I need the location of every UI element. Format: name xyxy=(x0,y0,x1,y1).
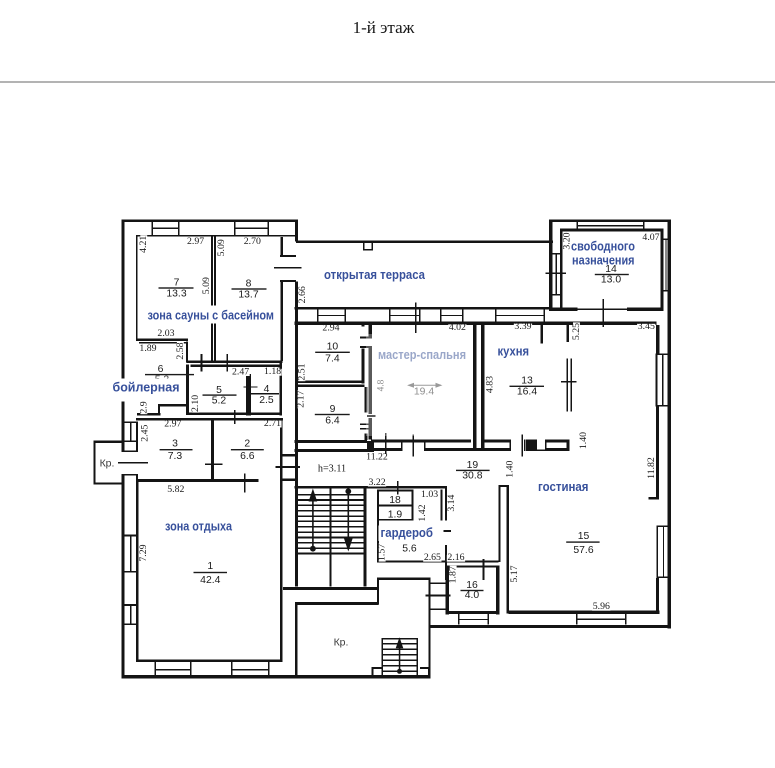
svg-text:4.21: 4.21 xyxy=(138,236,149,253)
svg-text:2: 2 xyxy=(244,439,250,450)
svg-text:5.17: 5.17 xyxy=(509,565,520,582)
svg-text:13.0: 13.0 xyxy=(601,275,621,286)
svg-text:5.09: 5.09 xyxy=(216,239,227,256)
svg-text:4.0: 4.0 xyxy=(465,590,480,601)
svg-text:11.22: 11.22 xyxy=(366,452,388,463)
svg-text:2.16: 2.16 xyxy=(447,552,464,563)
svg-text:8: 8 xyxy=(246,279,252,290)
svg-text:2.97: 2.97 xyxy=(164,419,181,430)
svg-text:9: 9 xyxy=(330,404,336,415)
svg-text:зона отдыха: зона отдыха xyxy=(165,520,233,534)
svg-text:5.82: 5.82 xyxy=(167,484,184,495)
svg-text:4: 4 xyxy=(264,384,270,395)
svg-text:5: 5 xyxy=(216,385,222,396)
svg-text:3.45: 3.45 xyxy=(638,321,655,332)
svg-text:7.3: 7.3 xyxy=(168,451,183,462)
svg-text:Кр.: Кр. xyxy=(334,636,349,648)
svg-text:13: 13 xyxy=(521,376,533,387)
svg-text:3.14: 3.14 xyxy=(446,494,457,511)
svg-text:6: 6 xyxy=(158,364,164,375)
svg-text:мастер-спальня: мастер-спальня xyxy=(378,348,466,362)
svg-text:1.18: 1.18 xyxy=(264,366,281,377)
svg-text:свободного: свободного xyxy=(571,239,635,253)
svg-text:2.51: 2.51 xyxy=(296,363,307,380)
svg-text:57.6: 57.6 xyxy=(573,545,593,556)
svg-text:гостиная: гостиная xyxy=(538,480,589,494)
svg-text:2.9: 2.9 xyxy=(138,401,149,413)
svg-text:1.57: 1.57 xyxy=(377,544,388,561)
svg-text:4.8: 4.8 xyxy=(376,379,386,391)
svg-text:2.47: 2.47 xyxy=(232,367,249,378)
svg-text:2.94: 2.94 xyxy=(322,322,339,333)
svg-text:бойлерная: бойлерная xyxy=(113,381,180,395)
svg-text:30.8: 30.8 xyxy=(462,470,482,481)
svg-text:13.7: 13.7 xyxy=(238,290,258,301)
svg-text:5.2: 5.2 xyxy=(212,396,227,407)
svg-text:Кр.: Кр. xyxy=(100,457,115,469)
svg-text:5.96: 5.96 xyxy=(593,601,610,612)
svg-text:2.65: 2.65 xyxy=(424,552,441,563)
svg-text:2.17: 2.17 xyxy=(296,391,307,408)
svg-text:10: 10 xyxy=(327,342,339,353)
svg-text:6.4: 6.4 xyxy=(325,416,340,427)
svg-text:1.87: 1.87 xyxy=(448,566,459,583)
svg-text:1: 1 xyxy=(207,561,213,572)
svg-text:14: 14 xyxy=(605,264,617,275)
svg-text:3.22: 3.22 xyxy=(369,477,386,488)
svg-text:2.10: 2.10 xyxy=(190,395,201,412)
svg-text:2.58: 2.58 xyxy=(175,342,186,359)
svg-text:4.07: 4.07 xyxy=(642,232,659,243)
svg-text:5.6: 5.6 xyxy=(402,543,417,554)
svg-text:3.20: 3.20 xyxy=(561,232,572,249)
svg-text:5.25: 5.25 xyxy=(571,323,582,340)
svg-text:2.71: 2.71 xyxy=(264,418,281,429)
svg-text:42.4: 42.4 xyxy=(200,575,220,586)
svg-text:3: 3 xyxy=(172,439,178,450)
svg-text:19.4: 19.4 xyxy=(414,387,434,398)
svg-text:гардероб: гардероб xyxy=(381,526,434,540)
svg-text:13.3: 13.3 xyxy=(166,289,186,300)
svg-text:2.70: 2.70 xyxy=(244,236,261,247)
svg-text:назначения: назначения xyxy=(572,254,635,268)
svg-text:16.4: 16.4 xyxy=(517,387,537,398)
svg-text:1.9: 1.9 xyxy=(388,510,403,521)
svg-text:2.03: 2.03 xyxy=(157,328,174,339)
svg-text:3.39: 3.39 xyxy=(514,321,531,332)
svg-text:7.29: 7.29 xyxy=(138,544,149,561)
svg-text:h=3.11: h=3.11 xyxy=(318,464,346,475)
svg-text:кухня: кухня xyxy=(498,345,530,359)
svg-text:2.66: 2.66 xyxy=(297,286,308,303)
svg-text:открытая терраса: открытая терраса xyxy=(324,268,426,282)
svg-text:11.82: 11.82 xyxy=(646,457,657,479)
svg-text:4.83: 4.83 xyxy=(485,376,496,393)
svg-text:18: 18 xyxy=(389,495,401,506)
svg-text:1.40: 1.40 xyxy=(578,432,589,449)
svg-text:4.02: 4.02 xyxy=(449,322,466,333)
svg-text:1.42: 1.42 xyxy=(417,504,428,521)
svg-text:2.5: 2.5 xyxy=(259,395,274,406)
svg-text:2.97: 2.97 xyxy=(187,236,204,247)
svg-text:1.89: 1.89 xyxy=(139,343,156,354)
svg-text:7.4: 7.4 xyxy=(325,353,340,364)
svg-text:6.6: 6.6 xyxy=(240,451,255,462)
svg-text:15: 15 xyxy=(578,531,590,542)
svg-text:зона сауны с басейном: зона сауны с басейном xyxy=(148,309,275,323)
svg-text:2.45: 2.45 xyxy=(140,425,151,442)
svg-text:1.40: 1.40 xyxy=(505,461,516,478)
svg-text:5.09: 5.09 xyxy=(201,277,212,294)
svg-text:1.03: 1.03 xyxy=(421,489,438,500)
svg-text:7: 7 xyxy=(174,278,180,289)
